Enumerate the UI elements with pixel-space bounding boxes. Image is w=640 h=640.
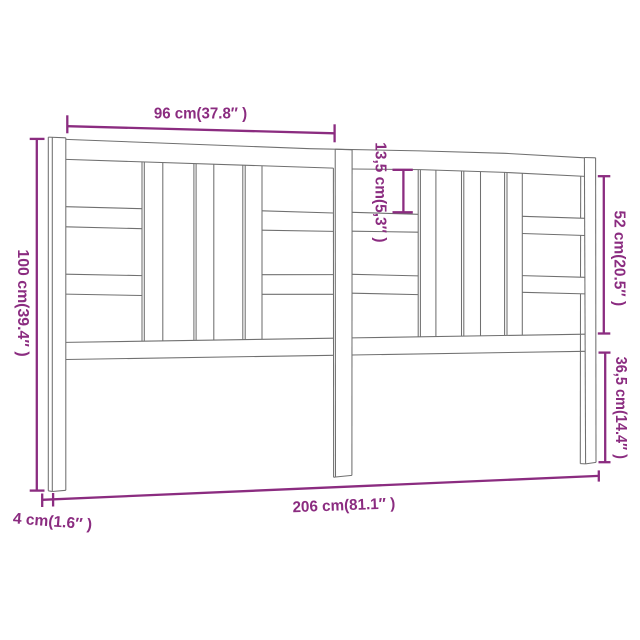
svg-text:100 cm(39.4″ ): 100 cm(39.4″ ) [14, 249, 31, 356]
svg-text:52 cm(20.5″ ): 52 cm(20.5″ ) [611, 211, 628, 307]
svg-text:96 cm(37.8″ ): 96 cm(37.8″ ) [154, 106, 247, 123]
svg-text:36,5 cm(14.4″ ): 36,5 cm(14.4″ ) [612, 357, 629, 459]
svg-text:13,5 cm(5,3″ ): 13,5 cm(5,3″ ) [372, 142, 389, 242]
